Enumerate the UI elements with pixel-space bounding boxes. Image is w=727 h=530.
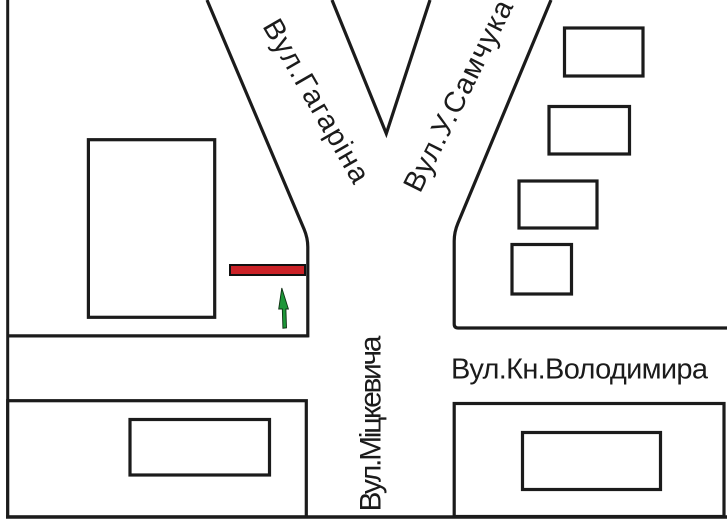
svg-text:Вул.Кн.Володимира: Вул.Кн.Володимира bbox=[451, 353, 709, 385]
svg-text:Вул.Міцкевича: Вул.Міцкевича bbox=[355, 335, 388, 511]
